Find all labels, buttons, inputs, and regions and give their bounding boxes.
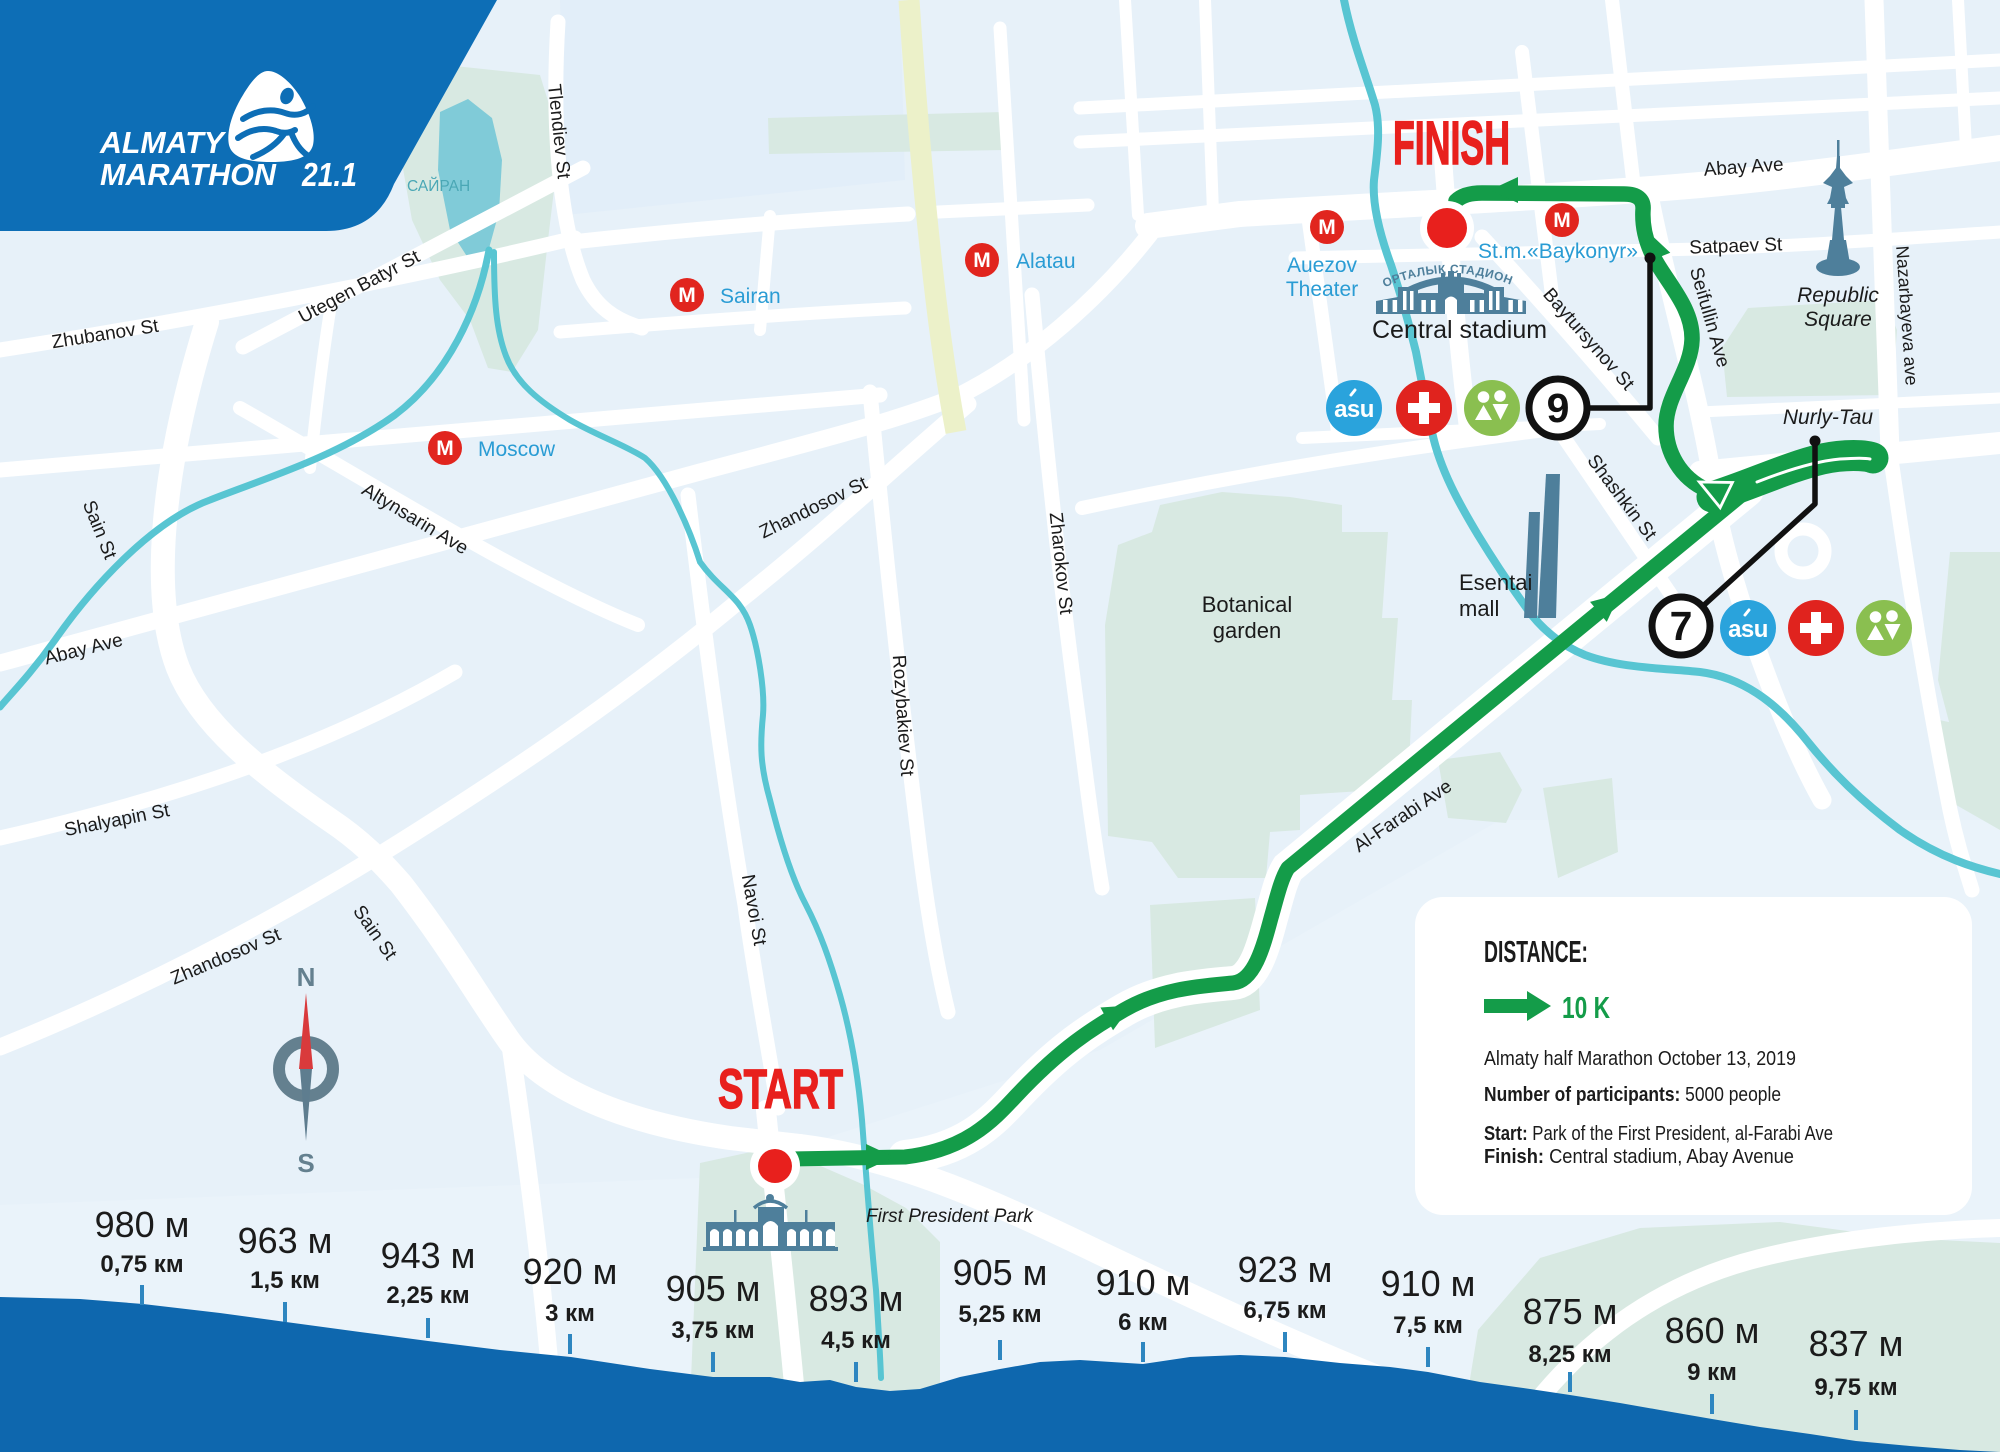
svg-text:875 м: 875 м <box>1523 1291 1618 1332</box>
svg-text:DISTANCE:: DISTANCE: <box>1484 934 1588 969</box>
svg-text:M: M <box>973 249 991 272</box>
svg-text:Republic: Republic <box>1797 284 1879 307</box>
svg-text:943 м: 943 м <box>381 1235 476 1276</box>
svg-text:910 м: 910 м <box>1096 1262 1191 1303</box>
svg-text:mall: mall <box>1459 596 1499 621</box>
svg-text:САЙРАН: САЙРАН <box>407 177 470 195</box>
svg-text:MARATHON: MARATHON <box>100 157 277 192</box>
svg-text:START: START <box>718 1057 843 1120</box>
svg-text:980 м: 980 м <box>95 1204 190 1245</box>
svg-text:2,25 км: 2,25 км <box>386 1282 469 1309</box>
svg-text:860 м: 860 м <box>1665 1310 1760 1351</box>
svg-text:asu: asu <box>1334 396 1374 423</box>
svg-text:Theater: Theater <box>1286 278 1358 301</box>
svg-text:Alatau: Alatau <box>1016 250 1076 273</box>
svg-text:905 м: 905 м <box>953 1252 1048 1293</box>
svg-text:Number of participants: 5000 p: Number of participants: 5000 people <box>1484 1083 1781 1106</box>
svg-text:Finish: Central stadium, Abay: Finish: Central stadium, Abay Avenue <box>1484 1145 1794 1168</box>
svg-text:M: M <box>436 437 454 460</box>
svg-text:893 м: 893 м <box>809 1278 904 1319</box>
svg-text:asu: asu <box>1728 616 1768 643</box>
svg-text:Auezov: Auezov <box>1287 254 1358 277</box>
svg-text:Sairan: Sairan <box>720 285 781 308</box>
svg-text:8,25 км: 8,25 км <box>1528 1341 1611 1368</box>
svg-text:St.m.«Baykonyr»: St.m.«Baykonyr» <box>1478 240 1638 263</box>
svg-text:Central stadium: Central stadium <box>1372 316 1547 344</box>
svg-text:6 км: 6 км <box>1118 1309 1168 1336</box>
svg-text:0,75 км: 0,75 км <box>100 1251 183 1278</box>
svg-text:837 м: 837 м <box>1809 1323 1904 1364</box>
svg-text:963 м: 963 м <box>238 1220 333 1261</box>
svg-text:N: N <box>297 962 316 992</box>
svg-text:5,25 км: 5,25 км <box>958 1301 1041 1328</box>
svg-text:3 км: 3 км <box>545 1300 595 1327</box>
svg-text:6,75 км: 6,75 км <box>1243 1297 1326 1324</box>
svg-text:Esentai: Esentai <box>1459 570 1532 595</box>
svg-text:FINISH: FINISH <box>1393 109 1510 177</box>
svg-text:910 м: 910 м <box>1381 1263 1476 1304</box>
svg-text:7: 7 <box>1670 603 1693 649</box>
svg-text:Almaty half Marathon October 1: Almaty half Marathon October 13, 2019 <box>1484 1047 1796 1070</box>
svg-text:Start: Park of the First Presi: Start: Park of the First President, al-F… <box>1484 1122 1833 1145</box>
svg-text:S: S <box>297 1148 314 1178</box>
svg-text:Botanical: Botanical <box>1202 592 1293 617</box>
svg-text:First President Park: First President Park <box>866 1206 1034 1227</box>
svg-text:10 K: 10 K <box>1562 990 1610 1025</box>
svg-text:923 м: 923 м <box>1238 1249 1333 1290</box>
svg-text:9: 9 <box>1547 385 1570 431</box>
svg-text:garden: garden <box>1213 618 1282 643</box>
svg-text:M: M <box>1553 209 1571 232</box>
svg-text:M: M <box>678 284 696 307</box>
svg-text:M: M <box>1318 216 1336 239</box>
svg-text:21.1: 21.1 <box>301 156 357 193</box>
svg-text:ALMATY: ALMATY <box>99 125 227 160</box>
svg-text:3,75 км: 3,75 км <box>671 1317 754 1344</box>
svg-text:9,75 км: 9,75 км <box>1814 1374 1897 1401</box>
svg-text:Nurly-Tau: Nurly-Tau <box>1783 406 1874 429</box>
svg-text:1,5 км: 1,5 км <box>250 1267 320 1294</box>
svg-text:7,5 км: 7,5 км <box>1393 1312 1463 1339</box>
svg-text:Satpaev St: Satpaev St <box>1689 234 1783 258</box>
svg-text:Square: Square <box>1804 308 1872 331</box>
svg-text:905 м: 905 м <box>666 1268 761 1309</box>
svg-text:9 км: 9 км <box>1687 1359 1737 1386</box>
svg-text:920 м: 920 м <box>523 1251 618 1292</box>
svg-text:4,5 км: 4,5 км <box>821 1327 891 1354</box>
svg-text:Moscow: Moscow <box>478 438 556 461</box>
